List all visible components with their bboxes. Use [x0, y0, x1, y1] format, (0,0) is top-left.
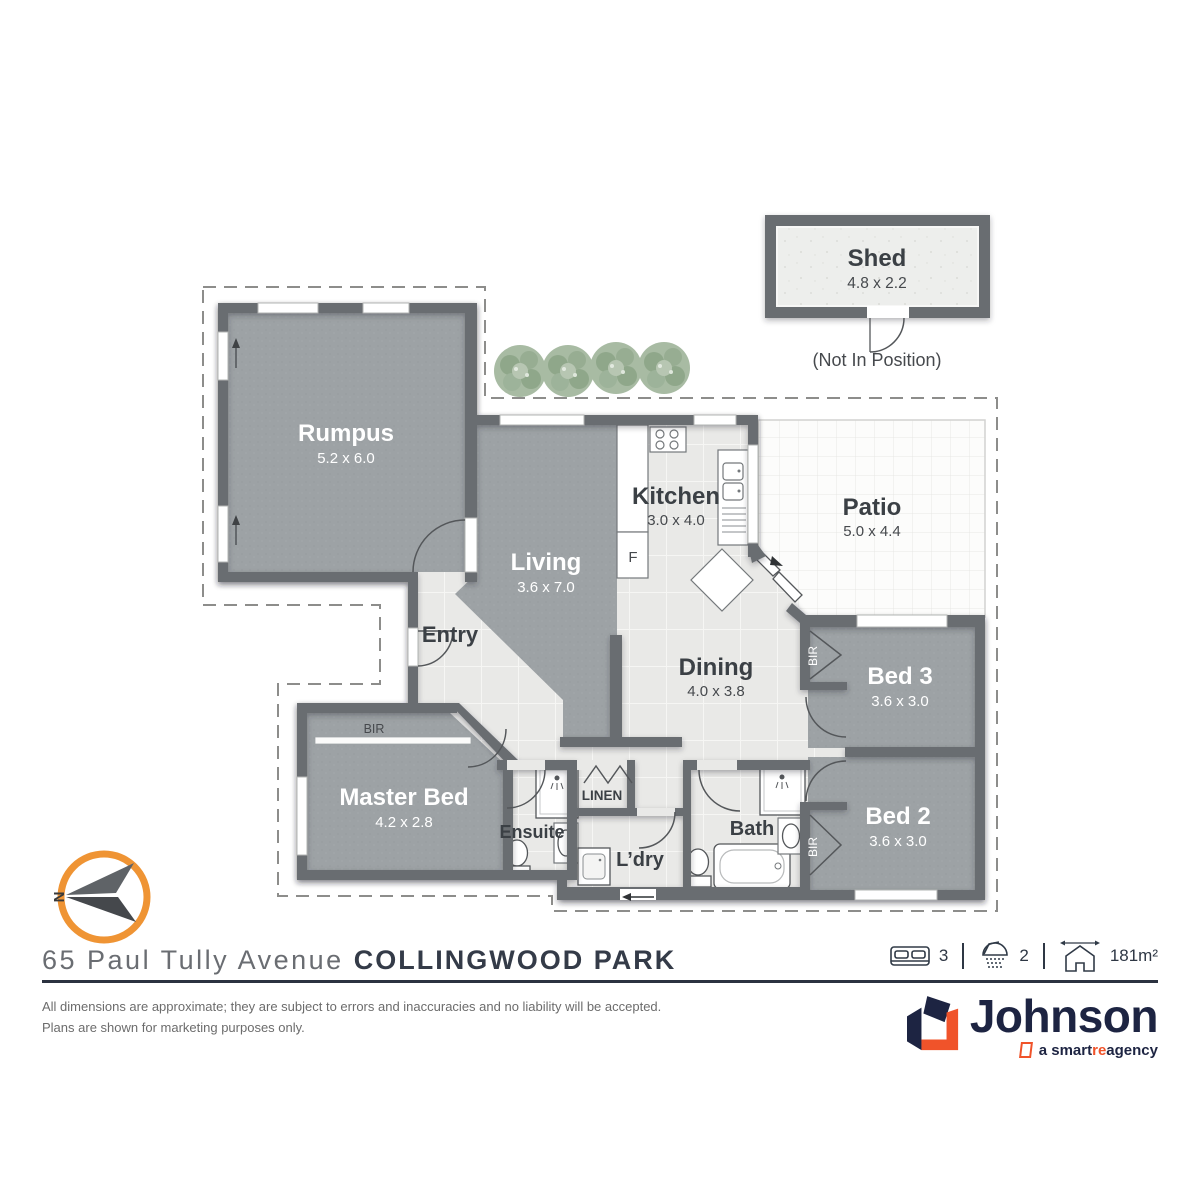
label-dining: Dining [679, 654, 754, 681]
kitchen-counter-left [617, 425, 648, 532]
address-street: 65 Paul Tully Avenue [42, 945, 344, 975]
beds-count: 3 [939, 946, 948, 966]
baths-count: 2 [1019, 946, 1028, 966]
shed-note: (Not In Position) [812, 350, 941, 370]
label-kitchen: Kitchen [632, 483, 720, 510]
address-suburb: COLLINGWOOD PARK [354, 945, 676, 975]
laundry-tub [578, 848, 610, 885]
area-value: 181m² [1110, 946, 1158, 966]
separator-line [42, 980, 1158, 983]
johnson-logo-mark [907, 995, 961, 1057]
label-master: Master Bed [339, 784, 468, 811]
tagline-accent: re [1092, 1042, 1106, 1059]
logo-tagline: a smartre agency [1020, 1042, 1158, 1059]
label-bed2: Bed 2 [865, 803, 930, 830]
address: 65 Paul Tully Avenue COLLINGWOOD PARK [42, 945, 676, 976]
label-bir-bed3: BIR [806, 646, 820, 666]
label-ensuite: Ensuite [499, 822, 564, 842]
shed-label: Shed [848, 245, 907, 272]
label-living: Living [511, 549, 582, 576]
label-bath: Bath [730, 818, 774, 840]
logo-name: Johnson [970, 995, 1158, 1039]
dims-rumpus: 5.2 x 6.0 [317, 450, 375, 467]
dims-dining: 4.0 x 3.8 [687, 683, 745, 700]
stats-divider [1043, 943, 1045, 969]
house-area-icon [1059, 940, 1101, 972]
disclaimer: All dimensions are approximate; they are… [42, 997, 661, 1039]
floorplan-drawing: Shed 4.8 x 2.2 (Not In Position) Rumpus … [0, 0, 1200, 944]
dims-living: 3.6 x 7.0 [517, 579, 575, 596]
door-icon [1019, 1042, 1033, 1058]
shower-icon [978, 941, 1010, 971]
disclaimer-line-1: All dimensions are approximate; they are… [42, 997, 661, 1018]
label-bed3: Bed 3 [867, 663, 932, 690]
agency-logo: Johnson a smartre agency [907, 995, 1158, 1059]
compass-north-label: N [51, 892, 68, 903]
dims-kitchen: 3.0 x 4.0 [647, 512, 705, 529]
label-laundry: L’dry [616, 849, 665, 871]
label-entry: Entry [422, 622, 479, 647]
stove-icon [650, 427, 686, 452]
master-robe-track [315, 737, 471, 744]
dims-bed3: 3.6 x 3.0 [871, 693, 929, 710]
label-rumpus: Rumpus [298, 420, 394, 447]
garden-trees [494, 342, 690, 397]
tagline-pre: a smart [1039, 1042, 1092, 1059]
label-bir-master: BIR [364, 722, 385, 736]
tagline-post: agency [1106, 1042, 1158, 1059]
dims-bed2: 3.6 x 3.0 [869, 833, 927, 850]
bath-shower [760, 765, 805, 815]
disclaimer-line-2: Plans are shown for marketing purposes o… [42, 1018, 661, 1039]
compass: N [51, 854, 147, 940]
dims-master: 4.2 x 2.8 [375, 814, 433, 831]
stats-divider [962, 943, 964, 969]
footer: 65 Paul Tully Avenue COLLINGWOOD PARK 3 [42, 936, 1158, 1059]
shed: Shed 4.8 x 2.2 [765, 215, 990, 352]
label-linen: LINEN [582, 788, 623, 803]
label-patio: Patio [843, 494, 902, 521]
logo-text: Johnson a smartre agency [970, 995, 1158, 1059]
floorplan-page: Shed 4.8 x 2.2 (Not In Position) Rumpus … [0, 0, 1200, 1200]
property-stats: 3 2 181m² [890, 940, 1158, 976]
dims-patio: 5.0 x 4.4 [843, 523, 901, 540]
bed-icon [890, 943, 930, 969]
address-row: 65 Paul Tully Avenue COLLINGWOOD PARK 3 [42, 936, 1158, 976]
kitchen-sink [718, 450, 748, 545]
shed-dims: 4.8 x 2.2 [847, 275, 906, 292]
footer-bottom-row: All dimensions are approximate; they are… [42, 997, 1158, 1059]
label-bir-bed2: BIR [806, 837, 820, 857]
label-fridge: F [628, 549, 637, 566]
